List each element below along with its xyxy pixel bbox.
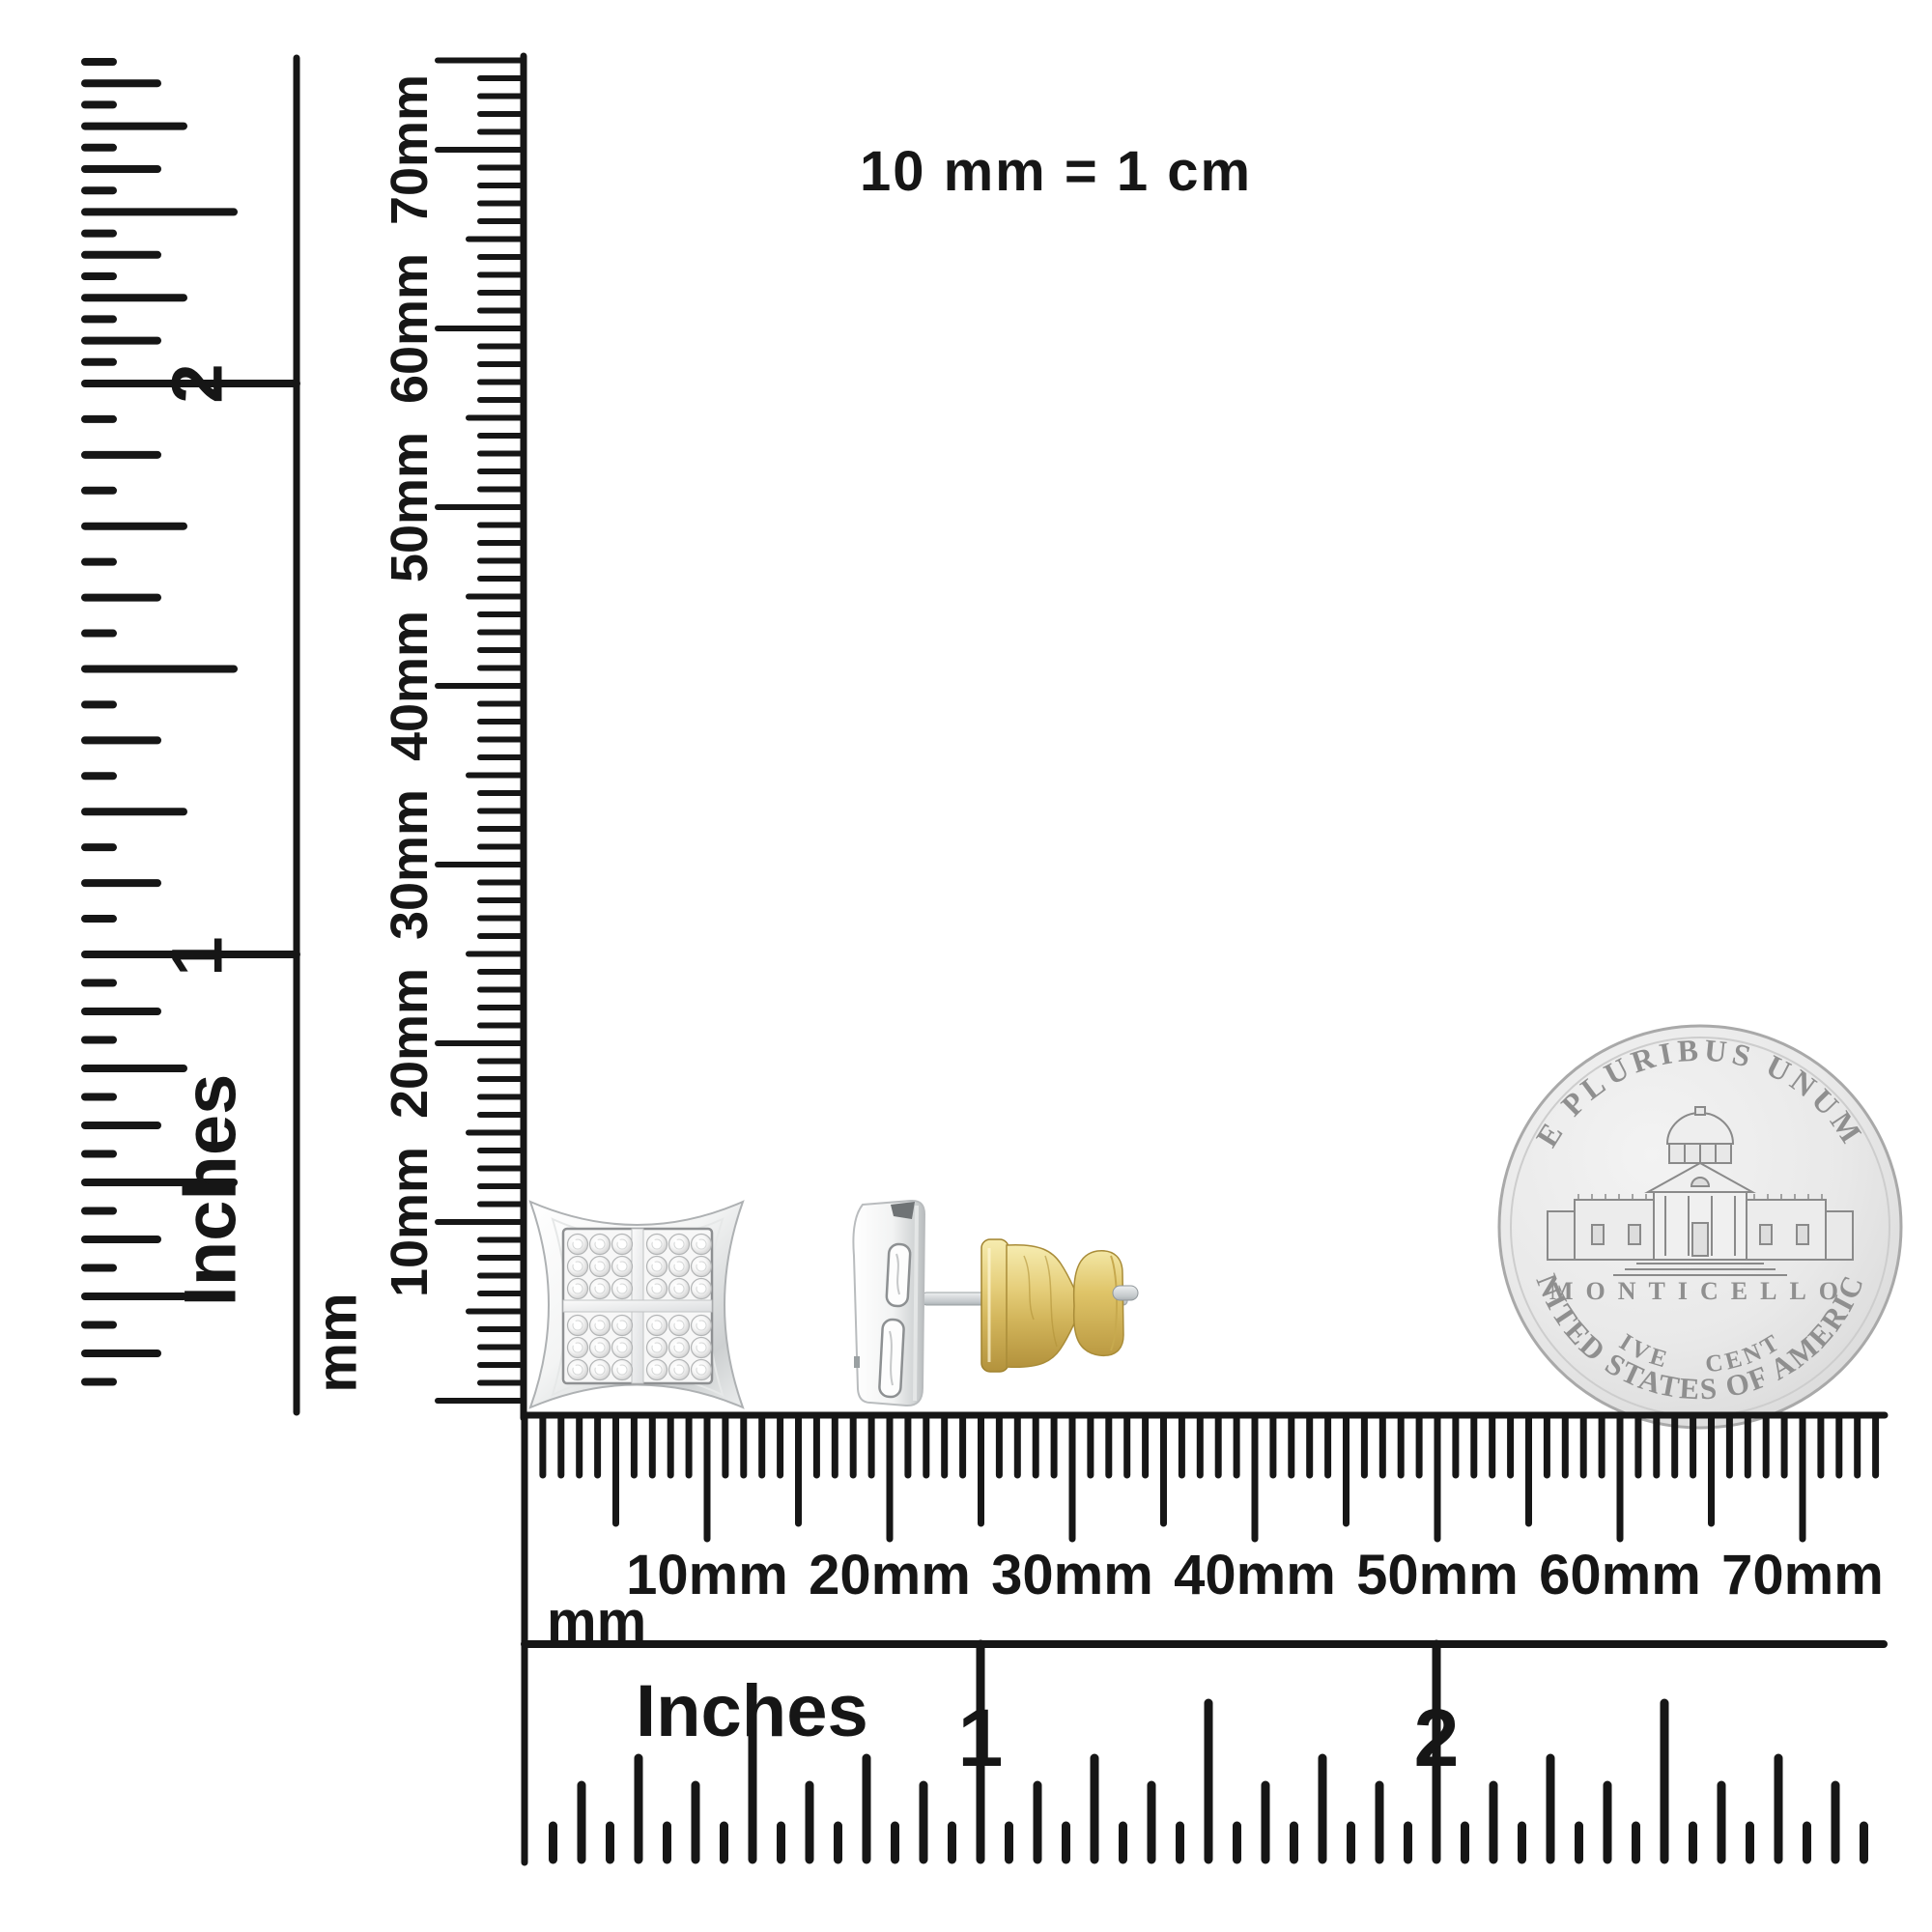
sparkle-highlight <box>617 1343 621 1347</box>
front-earring <box>530 1202 743 1407</box>
sparkle-highlight <box>617 1239 621 1243</box>
sparkle-highlight <box>674 1239 678 1243</box>
slab-foot-notch <box>854 1356 860 1368</box>
sparkle-highlight <box>595 1239 599 1243</box>
tick-label: 60mm <box>1539 1544 1701 1606</box>
coin-building-label: MONTICELLO <box>1549 1277 1851 1305</box>
sparkle-highlight <box>573 1262 577 1265</box>
tick-label: 2 <box>157 363 238 403</box>
tick-label: 20mm <box>381 968 439 1119</box>
tick-label: 50mm <box>381 432 439 582</box>
sparkle-highlight <box>652 1365 656 1369</box>
post-tip <box>1113 1286 1138 1300</box>
sparkle-highlight <box>617 1321 621 1324</box>
sparkle-highlight <box>696 1239 700 1243</box>
tick-label: 40mm <box>381 611 439 761</box>
tick-label: 60mm <box>381 253 439 404</box>
product-scale-photo: 10 mm = 1 cm <box>0 0 1932 1932</box>
sparkle-highlight <box>595 1284 599 1288</box>
sparkle-highlight <box>573 1365 577 1369</box>
sparkle-highlight <box>696 1365 700 1369</box>
sparkle-highlight <box>617 1284 621 1288</box>
sparkle-highlight <box>617 1262 621 1265</box>
sparkle-highlight <box>573 1284 577 1288</box>
scale-note: 10 mm = 1 cm <box>860 140 1252 203</box>
sparkle-highlight <box>595 1262 599 1265</box>
back-disc <box>981 1239 1009 1372</box>
ruler-left-inches-unit: Inches <box>170 1074 252 1307</box>
back-bell-body <box>1007 1245 1075 1368</box>
sparkle-highlight <box>652 1321 656 1324</box>
sparkle-highlight <box>696 1284 700 1288</box>
nickel-coin: E PLURIBUS UNUM MONTICELLO FIVE CENTS UN… <box>0 0 1901 1428</box>
sparkle-highlight <box>652 1262 656 1265</box>
sparkle-highlight <box>652 1239 656 1243</box>
sparkle-highlight <box>595 1321 599 1324</box>
sparkle-highlight <box>696 1343 700 1347</box>
tick-label: 40mm <box>1174 1544 1336 1606</box>
sparkle-highlight <box>573 1239 577 1243</box>
sparkle-highlight <box>674 1262 678 1265</box>
ruler-vertical-mm: 10mm20mm30mm40mm50mm60mm70mm <box>381 56 524 1418</box>
side-earring <box>853 1201 1138 1406</box>
scene: 10 mm = 1 cm <box>0 0 1932 1932</box>
slab-edge-highlight <box>915 1206 917 1401</box>
tick-label: 1 <box>958 1692 1004 1783</box>
tick-label: 10mm <box>381 1147 439 1297</box>
tick-label: 20mm <box>809 1544 971 1606</box>
sparkle-highlight <box>674 1321 678 1324</box>
tick-label: 30mm <box>381 789 439 940</box>
sparkle-highlight <box>573 1343 577 1347</box>
tick-label: 30mm <box>991 1544 1153 1606</box>
tick-label: 70mm <box>1721 1544 1884 1606</box>
sparkle-highlight <box>674 1365 678 1369</box>
tick-label: 50mm <box>1356 1544 1519 1606</box>
sparkle-highlight <box>652 1343 656 1347</box>
sparkle-highlight <box>674 1284 678 1288</box>
ruler-bottom-inches-unit: Inches <box>636 1670 868 1752</box>
tick-label: 70mm <box>381 74 439 225</box>
gold-friction-back <box>981 1239 1138 1372</box>
ruler-vertical-mm-unit: mm <box>306 1293 369 1392</box>
sparkle-highlight <box>696 1262 700 1265</box>
tick-label: 1 <box>157 936 238 976</box>
cross-bar-horizontal <box>563 1300 712 1312</box>
tick-label: 2 <box>1414 1692 1460 1783</box>
sparkle-highlight <box>573 1321 577 1324</box>
sparkle-highlight <box>595 1365 599 1369</box>
sparkle-highlight <box>674 1343 678 1347</box>
tick-label: 10mm <box>626 1544 788 1606</box>
sparkle-highlight <box>595 1343 599 1347</box>
sparkle-highlight <box>617 1365 621 1369</box>
sparkle-highlight <box>652 1284 656 1288</box>
sparkle-highlight <box>696 1321 700 1324</box>
